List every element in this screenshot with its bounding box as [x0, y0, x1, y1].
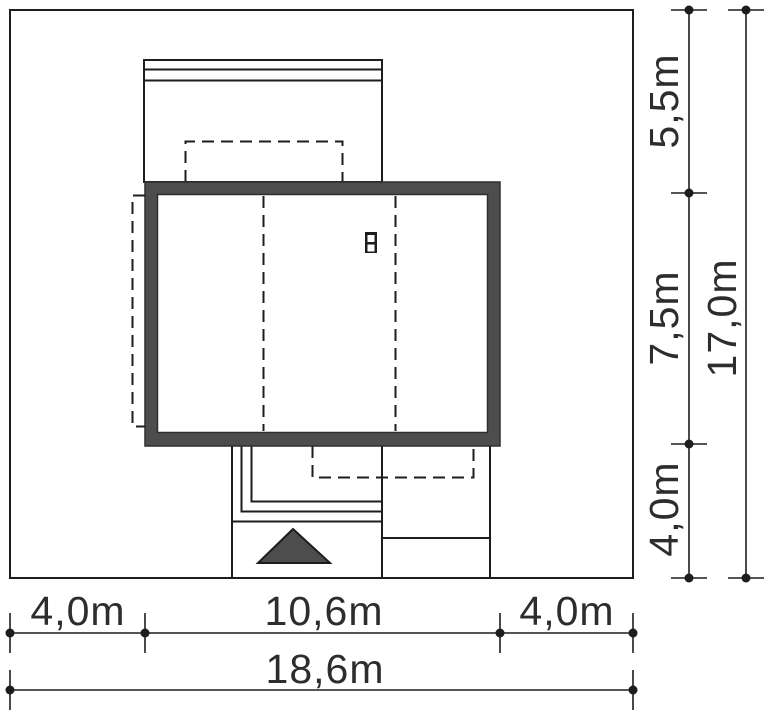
dim-label-bottom-segment-3: 4,0m	[519, 588, 614, 634]
site-plan-canvas: 4,0m 10,6m 4,0m 18,6m 5,5m 7,5m 4,0m	[0, 0, 770, 717]
dim-label-bottom-segment-2: 10,6m	[265, 588, 384, 634]
dim-label-bottom-segment-1: 4,0m	[30, 588, 125, 634]
right-dimension-total: 17,0m	[699, 6, 764, 583]
dimension-marker	[742, 6, 751, 15]
dimension-marker	[6, 629, 15, 638]
dimension-marker	[496, 629, 505, 638]
right-dimension-segments: 5,5m 7,5m 4,0m	[641, 6, 707, 583]
site-plan-drawing: 4,0m 10,6m 4,0m 18,6m 5,5m 7,5m 4,0m	[0, 0, 770, 717]
garage-footprint-dashed	[186, 142, 343, 183]
dimension-marker	[6, 686, 15, 695]
entrance-arrow-icon	[258, 529, 330, 563]
entrance-terrace-area	[232, 446, 490, 578]
left-overhang-dashed	[133, 196, 146, 427]
chimney-icon	[365, 232, 377, 253]
dim-label-right-segment-1: 5,5m	[641, 53, 687, 148]
dimension-marker	[629, 686, 638, 695]
terrace-step-line	[252, 446, 383, 502]
dimension-marker	[685, 189, 694, 198]
dim-label-right-total: 17,0m	[699, 259, 745, 378]
bottom-dimension-total: 18,6m	[6, 646, 638, 710]
dimension-marker	[141, 629, 150, 638]
bottom-dimension-segments: 4,0m 10,6m 4,0m	[6, 588, 638, 653]
roof-outline	[145, 182, 500, 446]
dim-label-right-segment-3: 4,0m	[641, 461, 687, 556]
porch-footprint-dashed	[313, 446, 474, 478]
dimension-marker	[629, 629, 638, 638]
dimension-marker	[685, 6, 694, 15]
dim-label-right-segment-2: 7,5m	[641, 270, 687, 365]
dimension-marker	[685, 574, 694, 583]
dimension-marker	[685, 440, 694, 449]
dimension-marker	[742, 574, 751, 583]
roof-inner-edge	[158, 195, 488, 433]
dim-label-bottom-total: 18,6m	[266, 646, 385, 692]
garage-wing-outline	[144, 60, 382, 182]
garage-wing	[144, 60, 382, 182]
